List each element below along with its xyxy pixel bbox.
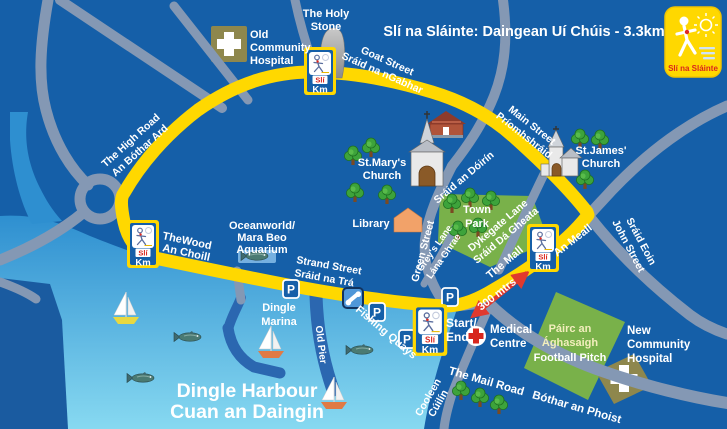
medical-centre-label: Medical (490, 324, 532, 336)
old-hospital-label: Old (250, 29, 268, 41)
football-pitch-label: Páirc an (549, 323, 592, 335)
logo-heart (685, 30, 689, 34)
sli-na-slainte-logo: Slí na Sláinte (665, 7, 721, 77)
start-end-label: End (446, 330, 469, 344)
start-end-label: Start/ (446, 316, 477, 330)
new-hospital-label: Hospital (627, 353, 672, 365)
st-james-label: Church (582, 158, 621, 170)
st-james-label: St.James' (576, 145, 627, 157)
logo-wordmark: Slí na Sláinte (668, 64, 718, 73)
harbour-label: Cuan an Daingin (170, 401, 324, 423)
old-hospital-label: Hospital (250, 55, 293, 67)
st-marys-label: Church (363, 170, 402, 182)
logo-walker-head (680, 17, 689, 26)
new-hospital-label: New (627, 325, 651, 337)
page-title: Slí na Sláinte: Daingean Uí Chúis - 3.3k… (383, 24, 664, 40)
dingle-marina-label: Marina (261, 316, 297, 328)
st-marys-label: St.Mary's (358, 157, 406, 169)
km-marker (304, 47, 336, 96)
library-label: Library (352, 218, 390, 230)
oceanworld-label: Mara Beo (237, 232, 287, 244)
old-hospital-label: Community (250, 42, 311, 54)
holy-stone-label: The Holy (303, 8, 350, 20)
dingle-sli-na-slainte-map: P Slí Km (0, 0, 727, 429)
town-park-label: Town (463, 204, 491, 216)
new-hospital-label: Community (627, 339, 691, 351)
map-canvas: P Slí Km (0, 0, 727, 429)
oceanworld-label: Oceanworld/ (229, 220, 295, 232)
km-marker (127, 220, 159, 269)
medical-centre-label: Centre (490, 338, 526, 350)
oceanworld-label: Aquarium (236, 244, 288, 256)
parking-icon (442, 288, 458, 306)
football-pitch-label: Football Pitch (534, 352, 607, 364)
parking-icon (283, 280, 299, 298)
harbour-label: Dingle Harbour (177, 380, 318, 402)
holy-stone-label: Stone (311, 21, 342, 33)
football-pitch-label: Ághasaigh (542, 336, 599, 349)
dingle-marina-label: Dingle (262, 302, 296, 314)
km-marker-start (413, 304, 448, 356)
